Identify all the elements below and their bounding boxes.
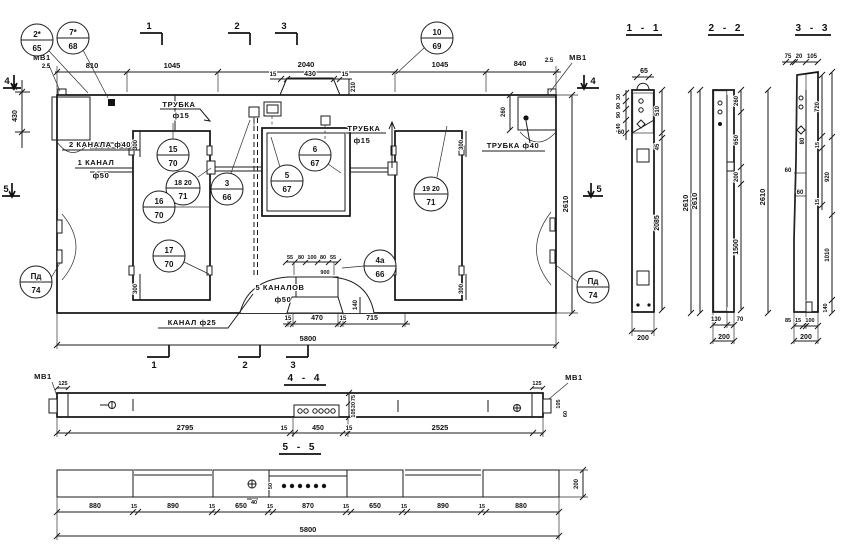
dim-stack-90a: 90 bbox=[616, 103, 622, 109]
mark-1-top: 1 bbox=[146, 21, 152, 32]
dim-840: 840 bbox=[514, 59, 527, 68]
mark-2-top: 2 bbox=[234, 21, 239, 32]
callout-pd-74-left: Пд74 bbox=[20, 263, 60, 298]
dim-2085: 2085 bbox=[654, 215, 661, 231]
label-mv1-s44-right: МВ1 bbox=[565, 373, 583, 382]
svg-text:Пд: Пд bbox=[588, 277, 599, 286]
dim-125-left: 125 bbox=[58, 381, 67, 387]
dim-200-s22-bottom: 200 bbox=[718, 334, 730, 341]
dim-15-s33c: 15 bbox=[795, 318, 801, 324]
seg-15f: 15 bbox=[479, 504, 485, 510]
svg-text:70: 70 bbox=[155, 211, 164, 220]
svg-text:6: 6 bbox=[313, 145, 318, 154]
dim-2610-s22-left: 2610 bbox=[690, 193, 699, 210]
label-1-kanal-dia: ф50 bbox=[93, 171, 110, 180]
dim-55-b: 55 bbox=[330, 255, 336, 261]
mark-4-left: 4 bbox=[4, 76, 10, 87]
section-2-2: 2 - 2 260 650 200 1500 2610 2610 130 70 … bbox=[690, 23, 771, 344]
dim-chain-bottom: 15 470 15 715 5800 bbox=[54, 313, 559, 349]
dim-r60: 60 bbox=[563, 411, 569, 417]
dim-20: 20 bbox=[796, 54, 803, 60]
svg-text:7*: 7* bbox=[69, 28, 77, 37]
seg-890a: 890 bbox=[167, 503, 179, 510]
mark-4-right: 4 bbox=[590, 76, 596, 87]
dim-r105: 105 bbox=[556, 399, 562, 408]
svg-text:4а: 4а bbox=[376, 256, 385, 265]
dim-chain-hump: 15 430 15 210 bbox=[270, 71, 357, 95]
svg-text:15: 15 bbox=[169, 145, 178, 154]
label-trubka15-mid: ТРУБКА bbox=[347, 124, 380, 133]
dim-210: 210 bbox=[351, 81, 357, 92]
svg-text:66: 66 bbox=[376, 270, 385, 279]
dims-5-5: 880 15 890 15 650 15 870 15 650 15 890 1… bbox=[54, 467, 588, 540]
dim-45: 45 bbox=[655, 143, 661, 150]
label-5-kanalov-dia: ф50 bbox=[275, 295, 292, 304]
opening-right bbox=[391, 131, 464, 300]
dim-80-b: 80 bbox=[320, 255, 326, 261]
seg-15b: 15 bbox=[209, 504, 215, 510]
dim-5800-s55: 5800 bbox=[300, 525, 317, 534]
svg-text:67: 67 bbox=[283, 185, 292, 194]
dim-2.5-right: 2.5 bbox=[545, 58, 554, 64]
dim-60-s33a: 60 bbox=[785, 168, 792, 174]
dim-v75: 75 bbox=[351, 395, 357, 401]
label-kanal-f25: КАНАЛ ф25 bbox=[168, 318, 217, 327]
svg-text:65: 65 bbox=[33, 44, 42, 53]
section-5-5: 5 - 5 40 50 880 15 890 15 650 15 870 15 … bbox=[54, 442, 588, 540]
dim-50: 50 bbox=[268, 483, 274, 489]
dim-40: 40 bbox=[251, 500, 257, 506]
dim-130: 130 bbox=[711, 317, 722, 323]
dim-650-s22: 650 bbox=[734, 134, 740, 145]
dim-260-s22: 260 bbox=[734, 95, 740, 106]
label-trubka15-left: ТРУБКА bbox=[162, 100, 195, 109]
dim-450: 450 bbox=[312, 425, 324, 432]
dim-60-s11: 60 bbox=[618, 130, 625, 136]
svg-text:Пд: Пд bbox=[31, 272, 42, 281]
dim-200-s55: 200 bbox=[574, 478, 580, 489]
dim-2610-right: 2610 bbox=[556, 92, 578, 316]
dim-200-s33: 200 bbox=[800, 334, 812, 341]
svg-text:67: 67 bbox=[311, 159, 320, 168]
dim-300-lb: 300 bbox=[133, 283, 139, 294]
mark-3-top: 3 bbox=[281, 21, 286, 32]
svg-text:2*: 2* bbox=[33, 30, 41, 39]
dim-2610-s22-right: 2610 bbox=[758, 189, 767, 206]
mark-5-right: 5 bbox=[596, 184, 602, 195]
dim-85: 85 bbox=[785, 318, 791, 324]
dim-470: 470 bbox=[311, 315, 323, 322]
seg-15c: 15 bbox=[267, 504, 273, 510]
mark-2-bottom: 2 bbox=[242, 360, 247, 371]
label-trubka15-mid-dia: ф15 bbox=[354, 136, 371, 145]
dim-810: 810 bbox=[86, 61, 99, 70]
dim-105: 105 bbox=[807, 54, 818, 60]
dim-300-lt: 300 bbox=[133, 139, 139, 150]
section-3-3: 3 - 3 75 20 105 720 15 15 920 1010 140 8… bbox=[782, 23, 835, 344]
dim-80-s33: 80 bbox=[800, 137, 806, 144]
dim-2040: 2040 bbox=[298, 60, 315, 69]
dim-100-s33: 100 bbox=[805, 318, 814, 324]
dim-chain-left-edge: 35 430 bbox=[12, 80, 30, 148]
dim-1045-a: 1045 bbox=[164, 61, 181, 70]
seg-650a: 650 bbox=[235, 503, 247, 510]
section-4-4: 4 - 4 МВ1 МВ1 125 125 75 20 105 105 60 2… bbox=[34, 372, 583, 437]
dim-stack-30: 30 bbox=[616, 94, 622, 100]
plan-view: 2.5 810 1045 2040 1045 840 2.5 15 430 15… bbox=[2, 21, 609, 371]
svg-text:66: 66 bbox=[223, 193, 232, 202]
panel-working-drawing: 2.5 810 1045 2040 1045 840 2.5 15 430 15… bbox=[0, 0, 864, 545]
mark-3-bottom: 3 bbox=[290, 360, 295, 371]
title-5-5: 5 - 5 bbox=[282, 442, 317, 453]
dim-60-s33b: 60 bbox=[797, 190, 804, 196]
dim-510: 510 bbox=[655, 105, 661, 116]
dim-260: 260 bbox=[501, 106, 507, 117]
title-4-4: 4 - 4 bbox=[287, 373, 322, 384]
svg-text:69: 69 bbox=[433, 42, 442, 51]
dim-900: 900 bbox=[320, 270, 329, 276]
seg-880b: 880 bbox=[515, 503, 527, 510]
title-3-3: 3 - 3 bbox=[795, 23, 830, 34]
dim-v105: 105 bbox=[351, 408, 357, 417]
seg-870: 870 bbox=[302, 503, 314, 510]
embed-fixture bbox=[108, 99, 115, 106]
dim-1500: 1500 bbox=[733, 239, 740, 255]
seg-650b: 650 bbox=[369, 503, 381, 510]
svg-text:10: 10 bbox=[433, 28, 442, 37]
dim-stack-90b: 90 bbox=[616, 112, 622, 118]
callout-pd-74-right: Пд74 bbox=[557, 266, 609, 303]
dim-920: 920 bbox=[825, 171, 831, 182]
channels-5-5: 40 50 bbox=[247, 480, 326, 506]
dim-125-right: 125 bbox=[532, 381, 541, 387]
dim-2610: 2610 bbox=[561, 196, 570, 213]
dim-200-s22: 200 bbox=[734, 171, 740, 182]
label-trubka-f40: ТРУБКА ф40 bbox=[487, 141, 540, 150]
svg-text:18 20: 18 20 bbox=[174, 180, 192, 187]
mark-1-bottom: 1 bbox=[151, 360, 157, 371]
dim-55-a: 55 bbox=[287, 255, 293, 261]
dim-2795: 2795 bbox=[177, 423, 194, 432]
svg-text:74: 74 bbox=[32, 286, 41, 295]
dim-300-rt: 300 bbox=[459, 139, 465, 150]
dim-15-c: 15 bbox=[285, 316, 292, 322]
svg-text:5: 5 bbox=[285, 171, 290, 180]
svg-text:68: 68 bbox=[69, 42, 78, 51]
seg-15e: 15 bbox=[401, 504, 407, 510]
svg-text:70: 70 bbox=[165, 260, 174, 269]
svg-text:70: 70 bbox=[169, 159, 178, 168]
label-1-kanal: 1 КАНАЛ bbox=[78, 158, 115, 167]
label-mv1-s44-left: МВ1 bbox=[34, 372, 52, 381]
svg-text:71: 71 bbox=[427, 198, 436, 207]
dim-15-d: 15 bbox=[340, 316, 347, 322]
dim-15-hump-l: 15 bbox=[270, 72, 277, 78]
label-5-kanalov: 5 КАНАЛОВ bbox=[255, 283, 304, 292]
blueprint-page: 2.5 810 1045 2040 1045 840 2.5 15 430 15… bbox=[0, 0, 864, 545]
dim-5800-plan: 5800 bbox=[300, 334, 317, 343]
svg-text:17: 17 bbox=[165, 246, 174, 255]
top-hump bbox=[280, 78, 340, 95]
dim-140-s33: 140 bbox=[823, 303, 829, 312]
dim-70: 70 bbox=[737, 317, 744, 323]
dim-80-a: 80 bbox=[298, 255, 304, 261]
dim-2610-s11: 2610 bbox=[681, 195, 690, 212]
dim-430-hump: 430 bbox=[304, 71, 316, 78]
dim-v20: 20 bbox=[351, 402, 357, 408]
seg-880a: 880 bbox=[89, 503, 101, 510]
svg-text:71: 71 bbox=[179, 192, 188, 201]
dim-15-s44b: 15 bbox=[346, 426, 353, 432]
dim-15-hump-r: 15 bbox=[342, 72, 349, 78]
svg-text:19 20: 19 20 bbox=[422, 186, 440, 193]
seg-15a: 15 bbox=[131, 504, 137, 510]
dim-300-rb: 300 bbox=[459, 283, 465, 294]
dim-2525: 2525 bbox=[432, 423, 449, 432]
svg-text:74: 74 bbox=[589, 291, 598, 300]
dim-1045-b: 1045 bbox=[432, 60, 449, 69]
section-1-1: 1 - 1 65 30 90 90 140 60 510 45 2085 261… bbox=[616, 23, 694, 342]
label-trubka15-left-dia: ф15 bbox=[173, 111, 190, 120]
dim-430-left: 430 bbox=[12, 110, 19, 122]
label-mv1-topright: МВ1 bbox=[569, 53, 587, 62]
dims-1-1: 30 90 90 140 60 510 45 2085 2610 200 bbox=[616, 87, 694, 342]
dim-15-s33a: 15 bbox=[815, 142, 821, 148]
seg-15d: 15 bbox=[343, 504, 349, 510]
dim-65: 65 bbox=[640, 68, 648, 75]
svg-text:3: 3 bbox=[225, 179, 230, 188]
dim-15-s33b: 15 bbox=[815, 199, 821, 205]
dim-715: 715 bbox=[366, 315, 378, 322]
label-2-kanala-f40: 2 КАНАЛА ф40 bbox=[69, 140, 131, 149]
dim-140: 140 bbox=[353, 299, 359, 310]
dim-75: 75 bbox=[785, 54, 792, 60]
mark-5-left: 5 bbox=[3, 184, 9, 195]
dim-100: 100 bbox=[307, 255, 316, 261]
svg-text:16: 16 bbox=[155, 197, 164, 206]
dim-720: 720 bbox=[815, 101, 821, 112]
dim-chain-top: 2.5 810 1045 2040 1045 840 2.5 bbox=[42, 58, 561, 95]
dim-15-s44a: 15 bbox=[281, 426, 288, 432]
title-2-2: 2 - 2 bbox=[708, 23, 743, 34]
dim-200-s11: 200 bbox=[637, 335, 649, 342]
seg-890b: 890 bbox=[437, 503, 449, 510]
dim-1010: 1010 bbox=[825, 248, 831, 262]
title-1-1: 1 - 1 bbox=[626, 23, 661, 34]
tube-f40-point bbox=[523, 115, 528, 120]
